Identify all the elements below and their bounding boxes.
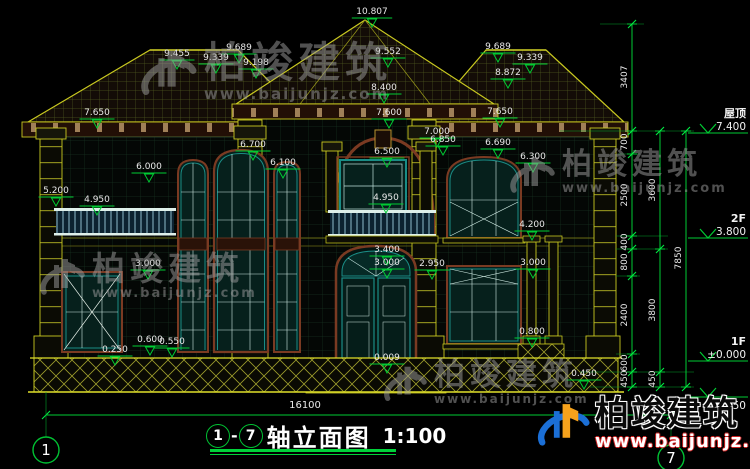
dimension-chains: 3407700250040080024006004503600380045078… bbox=[620, 20, 691, 391]
cad-canvas: 10.8079.5529.6899.4559.3399.1989.6899.33… bbox=[0, 0, 750, 469]
chain-dimension-label: 7850 bbox=[674, 246, 684, 269]
svg-text:9.339: 9.339 bbox=[517, 53, 543, 63]
svg-text:6.000: 6.000 bbox=[136, 162, 162, 172]
svg-text:±0.000: ±0.000 bbox=[707, 349, 746, 361]
svg-text:屋顶: 屋顶 bbox=[724, 107, 746, 120]
chain-dimension-label: 700 bbox=[620, 133, 630, 150]
chain-dimension-label: 3800 bbox=[648, 298, 658, 321]
svg-text:5.200: 5.200 bbox=[43, 186, 69, 196]
svg-text:3.000: 3.000 bbox=[135, 259, 161, 269]
right-1f-window bbox=[443, 266, 525, 349]
svg-text:4.200: 4.200 bbox=[519, 220, 545, 230]
svg-text:6.690: 6.690 bbox=[485, 138, 511, 148]
tall-arched-windows bbox=[178, 150, 300, 352]
drawing-title: 1 - 7 轴立面图 1:100 bbox=[206, 418, 446, 453]
svg-text:0.450: 0.450 bbox=[571, 369, 597, 379]
svg-text:3.000: 3.000 bbox=[520, 258, 546, 268]
svg-text:2F: 2F bbox=[731, 212, 746, 225]
svg-text:2.950: 2.950 bbox=[419, 259, 445, 269]
drawing-scale: 1:100 bbox=[383, 424, 447, 448]
svg-text:0.550: 0.550 bbox=[159, 337, 185, 347]
svg-text:8.400: 8.400 bbox=[371, 83, 397, 93]
svg-text:0.800: 0.800 bbox=[519, 327, 545, 337]
level-marker: 屋顶7.400 bbox=[688, 107, 748, 133]
svg-text:3.400: 3.400 bbox=[374, 245, 400, 255]
left-1f-window bbox=[62, 272, 122, 352]
svg-text:3.800: 3.800 bbox=[716, 226, 746, 238]
svg-text:4.950: 4.950 bbox=[84, 195, 110, 205]
svg-text:6.500: 6.500 bbox=[374, 147, 400, 157]
svg-text:7.650: 7.650 bbox=[487, 107, 513, 117]
chain-dimension-label: 400 bbox=[620, 233, 630, 250]
level-marker: 2F3.800 bbox=[688, 212, 748, 238]
baijun-logo-icon bbox=[533, 396, 591, 454]
building-base bbox=[28, 358, 624, 392]
chain-dimension-label: 2500 bbox=[620, 183, 630, 206]
bottom-dimension-label: 16100 bbox=[289, 400, 321, 411]
title-underline bbox=[210, 449, 396, 452]
svg-text:0.009: 0.009 bbox=[374, 353, 400, 363]
axis-bubble-start: 1 bbox=[206, 424, 230, 448]
svg-text:0.250: 0.250 bbox=[102, 345, 128, 355]
brand-logo: 柏竣建筑 www.baijunjz.com bbox=[533, 396, 750, 454]
svg-text:1F: 1F bbox=[731, 335, 746, 348]
svg-text:6.850: 6.850 bbox=[430, 135, 456, 145]
svg-text:9.455: 9.455 bbox=[164, 49, 190, 59]
title-separator: - bbox=[231, 426, 238, 445]
svg-text:9.198: 9.198 bbox=[243, 58, 269, 68]
chain-dimension-label: 800 bbox=[620, 253, 630, 270]
svg-text:6.100: 6.100 bbox=[270, 158, 296, 168]
chain-dimension-label: 3600 bbox=[648, 178, 658, 201]
brand-name: 柏竣建筑 bbox=[595, 397, 750, 431]
brand-url: www.baijunjz.com bbox=[595, 431, 750, 453]
svg-text:9.339: 9.339 bbox=[203, 53, 229, 63]
chain-dimension-label: 450 bbox=[648, 370, 658, 387]
svg-text:7.600: 7.600 bbox=[376, 108, 402, 118]
svg-text:7.400: 7.400 bbox=[716, 121, 746, 133]
svg-text:8.872: 8.872 bbox=[495, 68, 521, 78]
svg-text:7.650: 7.650 bbox=[84, 108, 110, 118]
left-balcony-railing bbox=[54, 208, 176, 236]
chain-dimension-label: 2400 bbox=[620, 303, 630, 326]
level-marker: 1F±0.000 bbox=[688, 335, 748, 361]
axis-bubble: 1 bbox=[33, 437, 59, 463]
svg-text:4.950: 4.950 bbox=[373, 193, 399, 203]
svg-text:3.000: 3.000 bbox=[374, 258, 400, 268]
svg-text:10.807: 10.807 bbox=[356, 7, 388, 17]
level-markers: 屋顶7.4002F3.8001F±0.000-0.450 bbox=[688, 107, 748, 412]
svg-text:9.689: 9.689 bbox=[226, 43, 252, 53]
chain-dimension-label: 450 bbox=[620, 370, 630, 387]
svg-text:6.700: 6.700 bbox=[240, 140, 266, 150]
svg-text:9.689: 9.689 bbox=[485, 42, 511, 52]
chain-dimension-label: 3407 bbox=[620, 66, 630, 89]
drawing-title-text: 轴立面图 bbox=[267, 418, 371, 453]
svg-text:1: 1 bbox=[41, 441, 51, 459]
svg-text:9.552: 9.552 bbox=[375, 47, 401, 57]
svg-text:6.300: 6.300 bbox=[520, 152, 546, 162]
chain-dimension-label: 600 bbox=[620, 354, 630, 371]
title-underline-2 bbox=[210, 454, 396, 456]
right-2f-window bbox=[443, 157, 525, 243]
bottom-dimension: 16100 bbox=[289, 400, 321, 411]
axis-bubble-end: 7 bbox=[239, 424, 263, 448]
